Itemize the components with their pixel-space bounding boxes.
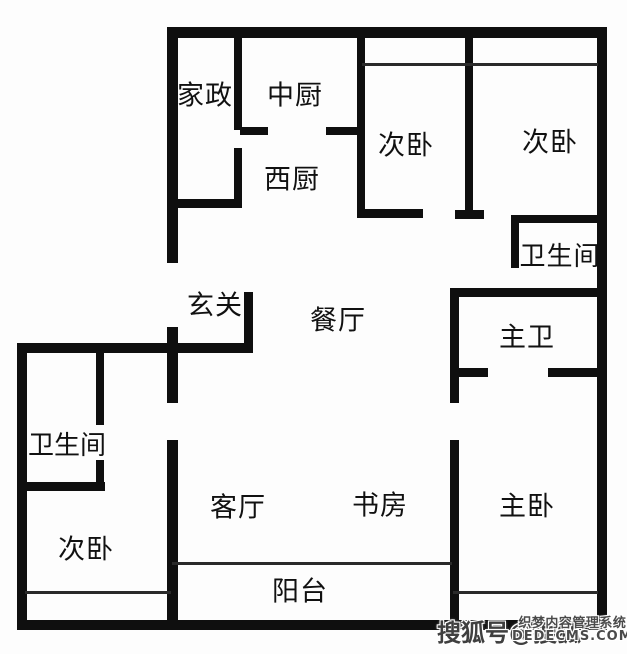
wall-left-mid-lower xyxy=(167,440,178,630)
room-label-western-kitchen: 西厨 xyxy=(264,167,320,194)
room-label-housekeeping: 家政 xyxy=(177,83,233,110)
wall-jiazheng-bottom xyxy=(167,199,242,208)
room-label-dining-room: 餐厅 xyxy=(310,308,366,335)
balcony-sill-line xyxy=(172,562,452,565)
wall-bath-tr-top xyxy=(511,215,601,223)
wall-bath-tr-left xyxy=(511,215,519,268)
wall-outer-top xyxy=(167,27,607,38)
wall-bath-bl-bottom xyxy=(25,482,105,491)
wall-bath-bl-right-upper xyxy=(96,353,104,425)
room-label-master-bathroom: 主卫 xyxy=(499,325,555,352)
wall-bedroom-divider-foot xyxy=(455,210,484,219)
wall-bedroom1-bottom xyxy=(357,209,423,218)
watermark-dedecms-line2: DEDECMS.COM xyxy=(512,630,627,643)
wall-xuanguan-right xyxy=(244,292,253,353)
room-label-study: 书房 xyxy=(352,493,408,520)
room-label-bathroom-left: 卫生间 xyxy=(28,433,106,459)
wall-zhuwei-left xyxy=(450,288,459,403)
window-line-top-bedrooms xyxy=(362,63,598,66)
floorplan-image: 家政 中厨 西厨 次卧 次卧 卫生间 玄关 餐厅 主卫 卫生间 客厅 书房 主卧… xyxy=(0,0,627,654)
window-line-master-bedroom xyxy=(453,591,598,594)
room-label-living-room: 客厅 xyxy=(210,495,266,522)
room-label-master-bedroom: 主卧 xyxy=(499,494,555,521)
room-label-chinese-kitchen: 中厨 xyxy=(267,83,323,110)
room-label-bedroom-bottom-left: 次卧 xyxy=(58,537,114,564)
room-label-balcony: 阳台 xyxy=(272,579,328,606)
watermark-dedecms: 织梦内容管理系统 DEDECMS.COM xyxy=(512,617,627,643)
wall-zhuwei-top xyxy=(450,288,600,297)
wall-zhuwei-bottom-left xyxy=(450,368,488,377)
wall-kitchen-stub-left xyxy=(240,127,268,135)
wall-outer-left-upper xyxy=(167,27,178,263)
room-label-bathroom-top-right: 卫生间 xyxy=(519,244,600,270)
room-label-bedroom-top-left: 次卧 xyxy=(378,133,434,160)
room-label-bedroom-top-right: 次卧 xyxy=(522,130,578,157)
wall-left-mid-upper xyxy=(167,327,178,403)
wall-outer-right xyxy=(597,27,607,630)
wall-zhuwei-bottom-right xyxy=(548,368,600,377)
wall-right-mid-lower xyxy=(450,440,459,630)
window-line-bedroom-bl xyxy=(25,591,171,594)
room-label-entrance: 玄关 xyxy=(187,293,243,320)
wall-annex-top xyxy=(17,343,253,353)
wall-jiazheng-right-upper xyxy=(234,38,242,130)
